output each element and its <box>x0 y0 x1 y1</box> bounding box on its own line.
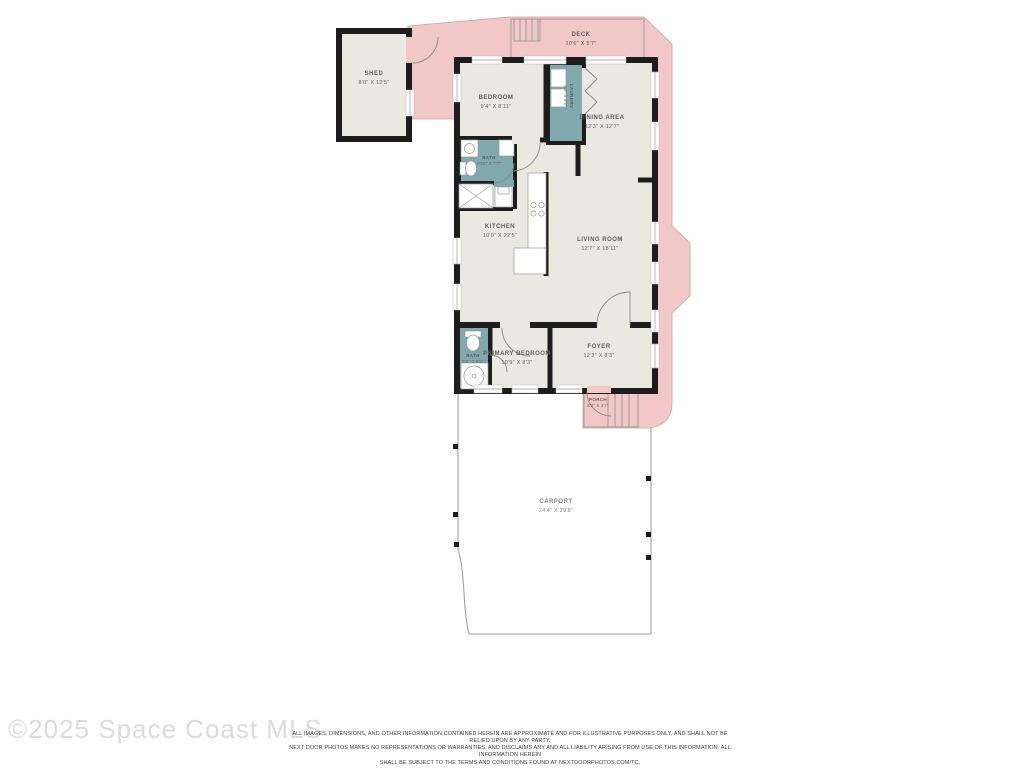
toilet-tank <box>460 162 466 175</box>
room-name: LAUNDRY <box>568 84 575 108</box>
kitchen-peninsula <box>514 248 546 274</box>
room-dims: 12'3" X 8'3" <box>583 352 614 360</box>
shed-door-opening <box>406 37 414 63</box>
room-dims: 5'3" X 2'6" <box>561 84 568 108</box>
mls-watermark: ©2025 Space Coast MLS <box>8 714 323 745</box>
room-name: BEDROOM <box>479 94 514 103</box>
water-heater <box>495 184 512 207</box>
room-label-shed: SHED 8'0" X 12'5" <box>358 70 389 88</box>
room-label-living-room: LIVING ROOM 12'7" X 18'11" <box>577 236 623 254</box>
room-label-bedroom: BEDROOM 9'4" X 8'11" <box>479 94 514 112</box>
foyer-door-opening <box>597 321 630 329</box>
room-name: LIVING ROOM <box>577 236 623 245</box>
room-dims: 5'6" X 8'5" <box>462 359 483 366</box>
carport-post <box>646 476 651 481</box>
toilet-bowl <box>467 335 480 351</box>
room-name: BATH <box>477 154 501 161</box>
carport-post <box>646 555 651 560</box>
room-label-bath-lower: BATH 5'6" X 8'5" <box>462 352 483 366</box>
room-name: KITCHEN <box>483 223 517 232</box>
room-name: CARPORT <box>539 498 573 507</box>
room-label-carport: CARPORT 24'4" X 29'8" <box>539 498 573 516</box>
room-label-bath-upper: BATH 5'10" X 7'7" <box>477 154 501 168</box>
room-label-porch: PORCH 8'2" X 3'7" <box>587 396 608 410</box>
disclaimer-line: SHALL BE SUBJECT TO THE TERMS AND CONDIT… <box>285 760 735 767</box>
bath-door-opening <box>494 180 514 187</box>
room-name: DINING AREA <box>580 114 625 123</box>
carport-post <box>453 444 458 449</box>
bath-sink <box>465 144 475 154</box>
disclaimer-text: ALL IMAGES, DIMENSIONS, AND OTHER INFORM… <box>285 731 735 767</box>
room-label-deck: DECK 10'6" X 5'7" <box>565 31 596 49</box>
room-name: BATH <box>462 352 483 359</box>
room-name: FOYER <box>583 343 614 352</box>
room-dims: 8'0" X 12'5" <box>358 79 389 87</box>
carport-post <box>646 532 651 537</box>
room-label-laundry: LAUNDRY 5'3" X 2'6" <box>561 84 575 108</box>
toilet-bowl <box>466 161 477 176</box>
room-label-kitchen: KITCHEN 10'9" X 22'5" <box>483 223 517 241</box>
floorplan-drawing <box>0 0 1024 768</box>
bedroom-door-opening <box>512 136 540 144</box>
room-dims: 12'3" X 12'7" <box>580 123 625 131</box>
room-name: PRIMARY BEDROOM <box>483 350 551 359</box>
carport-post <box>454 542 459 547</box>
room-dims: 5'10" X 7'7" <box>477 161 501 168</box>
room-name: SHED <box>358 70 389 79</box>
room-dims: 10'9" X 8'3" <box>483 359 551 367</box>
room-label-dining-area: DINING AREA 12'3" X 12'7" <box>580 114 625 132</box>
room-dims: 8'2" X 3'7" <box>587 403 608 410</box>
disclaimer-line: ALL IMAGES, DIMENSIONS, AND OTHER INFORM… <box>285 731 735 745</box>
primary-door-opening <box>500 321 530 329</box>
room-dims: 10'6" X 5'7" <box>565 40 596 48</box>
front-door-opening <box>587 386 611 393</box>
room-label-primary-bedroom: PRIMARY BEDROOM 10'9" X 8'3" <box>483 350 551 368</box>
room-dims: 9'4" X 8'11" <box>479 103 514 111</box>
room-dims: 12'7" X 18'11" <box>577 245 623 253</box>
floorplan-page: SHED 8'0" X 12'5" DECK 10'6" X 5'7" BEDR… <box>0 0 1024 768</box>
bath-shower <box>499 140 514 156</box>
room-name: DECK <box>565 31 596 40</box>
carport-post <box>453 512 458 517</box>
room-name: PORCH <box>587 396 608 403</box>
room-dims: 24'4" X 29'8" <box>539 507 573 515</box>
room-dims: 10'9" X 22'5" <box>483 232 517 240</box>
room-label-foyer: FOYER 12'3" X 8'3" <box>583 343 614 361</box>
disclaimer-line: NEXT DOOR PHOTOS MAKES NO REPRESENTATION… <box>285 745 735 759</box>
